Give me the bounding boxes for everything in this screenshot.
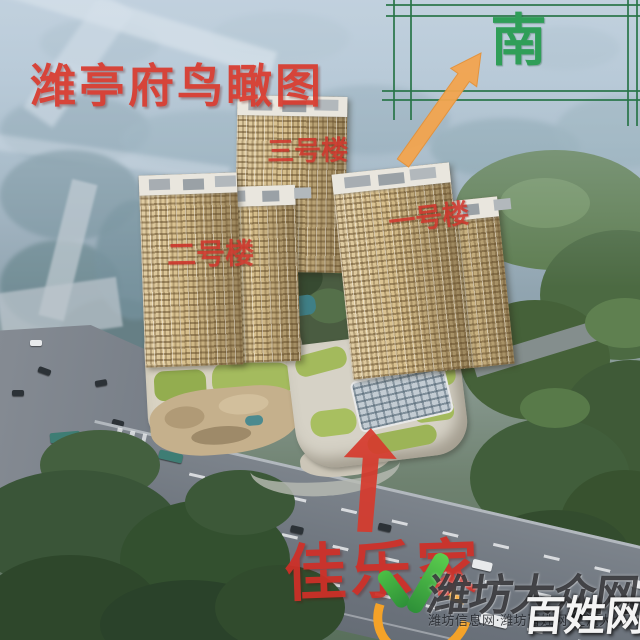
rock [191, 424, 252, 447]
compass-frame-line [636, 0, 638, 126]
birdseye-rendering: 南 潍亭府鸟瞰图 三号楼 一号楼 二号楼 佳乐家 潍坊大众网 百姓网 潍坊信息网… [0, 0, 640, 640]
tree-blob [520, 388, 590, 428]
tower-roof [139, 172, 238, 195]
compass-frame-line [627, 0, 629, 126]
rock [164, 405, 206, 430]
south-direction-arrow-icon [393, 45, 493, 170]
building-2-label: 二号楼 [167, 230, 255, 274]
vehicle [12, 390, 24, 396]
watermark-brand-name: 百姓网 [521, 582, 640, 640]
compass-frame-line [386, 4, 640, 6]
roof-garden [293, 344, 349, 379]
pool [245, 415, 264, 427]
tree-blob [500, 178, 590, 228]
building-3-label: 三号楼 [267, 128, 349, 168]
vehicle [30, 340, 42, 346]
page-title: 潍亭府鸟瞰图 [30, 50, 324, 116]
rock [218, 392, 270, 416]
